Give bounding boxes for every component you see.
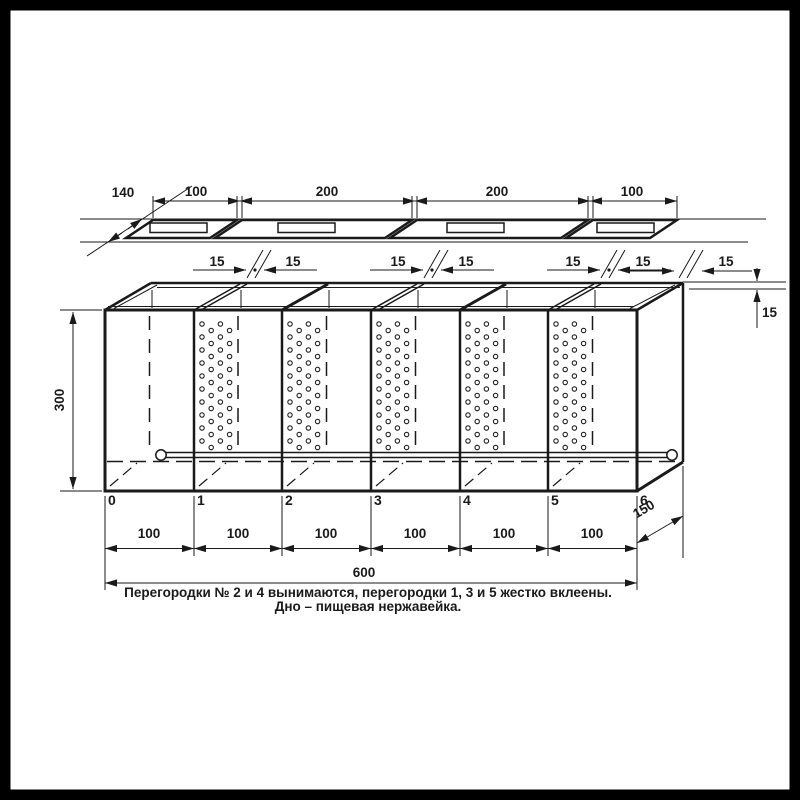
dim-compartment-3: 100 bbox=[315, 526, 338, 541]
dim-total-width: 600 bbox=[353, 565, 376, 580]
dim-gap-5-left: 15 bbox=[565, 254, 581, 269]
dim-rim-end: 15 bbox=[718, 254, 734, 269]
dim-compartment-6: 100 bbox=[581, 526, 604, 541]
dim-compartment-1: 100 bbox=[138, 526, 161, 541]
dim-height: 300 bbox=[52, 389, 67, 412]
rod-end-left bbox=[156, 450, 166, 460]
rod-end-right bbox=[667, 450, 677, 460]
partition-number-2: 2 bbox=[285, 492, 293, 508]
dim-rim-height: 15 bbox=[762, 305, 778, 320]
partition-number-5: 5 bbox=[551, 492, 559, 508]
partition-number-3: 3 bbox=[374, 492, 382, 508]
dim-gap-1-left: 15 bbox=[209, 254, 225, 269]
dim-lid-width-3: 200 bbox=[486, 184, 509, 199]
dim-compartment-4: 100 bbox=[404, 526, 427, 541]
dim-compartment-5: 100 bbox=[493, 526, 516, 541]
dim-lid-width-1: 100 bbox=[185, 184, 208, 199]
note-line-1: Перегородки № 2 и 4 вынимаются, перегоро… bbox=[124, 585, 612, 600]
dim-gap-1-right: 15 bbox=[285, 254, 301, 269]
dim-compartment-2: 100 bbox=[227, 526, 250, 541]
canvas-background bbox=[0, 0, 800, 800]
dim-lid-depth: 140 bbox=[112, 185, 135, 200]
dim-lid-width-2: 200 bbox=[316, 184, 339, 199]
technical-drawing: 100 200 200 100 140 bbox=[0, 0, 800, 800]
partition-number-4: 4 bbox=[463, 492, 471, 508]
dim-gap-3-left: 15 bbox=[390, 254, 406, 269]
dim-gap-3-right: 15 bbox=[458, 254, 474, 269]
partition-number-0: 0 bbox=[108, 492, 116, 508]
drawing-page: 100 200 200 100 140 bbox=[0, 0, 800, 800]
dim-lid-width-4: 100 bbox=[621, 184, 644, 199]
note-line-2: Дно – пищевая нержавейка. bbox=[275, 599, 462, 614]
partition-number-1: 1 bbox=[197, 492, 205, 508]
dim-gap-5-right: 15 bbox=[635, 254, 651, 269]
